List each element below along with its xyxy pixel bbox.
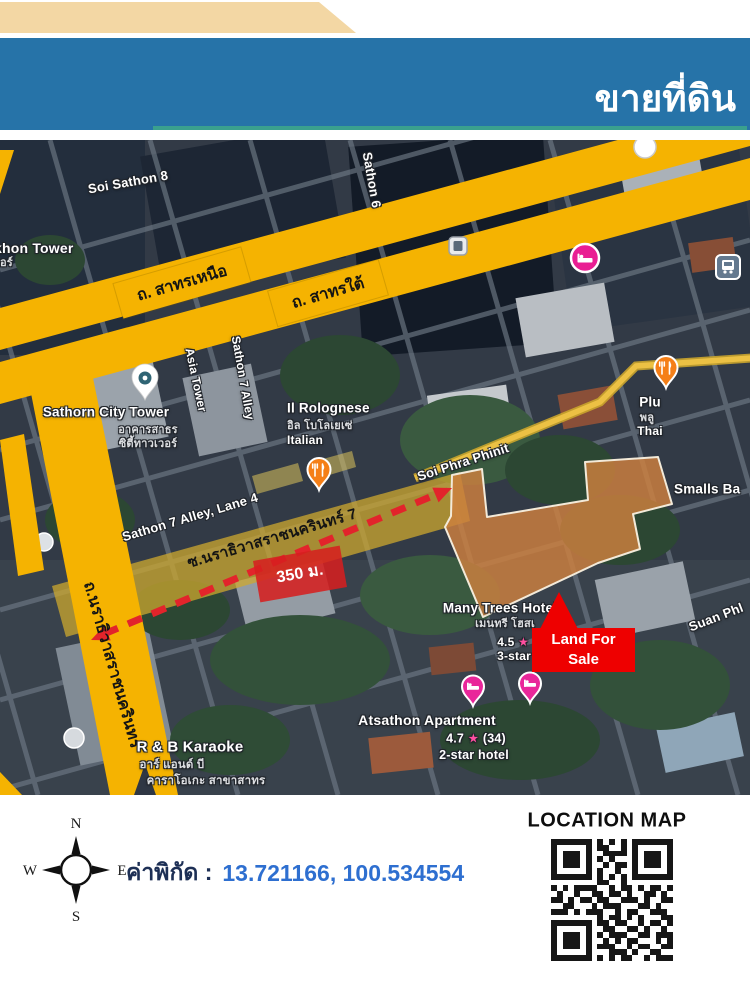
- compass-w: W: [23, 863, 38, 879]
- atsathon-rating: 4.7 ★ (34): [446, 731, 506, 746]
- banner-divider: [153, 126, 747, 130]
- place-label-plu-type: Thai: [637, 424, 662, 438]
- qr-code: [551, 839, 673, 961]
- many-trees-class: 3-star: [497, 649, 531, 663]
- satellite-map: Soi Sathon 8 khon Tower อร์ Sathon 6 ถ. …: [0, 140, 750, 795]
- place-label-many-trees-thai: เมนทรี โฮสเ: [475, 614, 535, 632]
- land-for-sale-callout: Land For Sale: [532, 628, 635, 672]
- hotel-pin-icon: [571, 244, 599, 272]
- star-icon: ★: [468, 732, 479, 746]
- coordinates-row: ค่าพิกัด : 13.721166, 100.534554: [126, 856, 464, 890]
- star-icon: ★: [518, 635, 529, 649]
- station-icon: [634, 140, 656, 158]
- rating-value: 4.5: [497, 635, 514, 649]
- land-for-sale-line1: Land For: [532, 630, 635, 650]
- many-trees-rating: 4.5 ★: [497, 635, 529, 649]
- place-label-il-rolognese-type: Italian: [287, 433, 323, 447]
- tan-decorative-shape: [0, 0, 750, 40]
- place-label-il-rolognese: Il Rolognese: [287, 401, 370, 416]
- place-label-karaoke-thai2: คาราโอเกะ สาขาสาทร: [147, 772, 266, 790]
- rating-value: 4.7: [446, 732, 464, 746]
- compass-rose: N S W E: [18, 812, 134, 928]
- place-label-il-rolognese-thai: อิล โบโลเยเซ่: [287, 416, 353, 434]
- atsathon-class: 2-star hotel: [439, 748, 509, 762]
- location-map-title: LOCATION MAP: [528, 810, 687, 833]
- review-count: (34): [483, 732, 506, 746]
- callout-pointer: [540, 592, 578, 629]
- land-for-sale-line2: Sale: [532, 650, 635, 670]
- bus-stop-icon: [716, 255, 740, 279]
- place-label-sakhon-tower-thai: อร์: [0, 253, 13, 271]
- poi-circle-icon: [64, 728, 84, 748]
- flyer-title: ขายที่ดิน: [595, 80, 736, 117]
- place-label-karaoke: R & B Karaoke: [137, 739, 244, 756]
- title-banner: ขายที่ดิน ซอยนราธิวาสราชนครินทร์ 7 เขตสา…: [0, 38, 750, 130]
- place-label-smalls-bar: Smalls Ba: [674, 482, 740, 497]
- place-label-sathorn-city-tower: Sathorn City Tower: [43, 405, 169, 420]
- compass-s: S: [72, 909, 80, 925]
- compass-n: N: [71, 816, 82, 832]
- place-label-sathorn-city-thai2: ซิตี้ทาวเวอร์: [119, 434, 177, 452]
- coordinates-label: ค่าพิกัด :: [126, 855, 212, 891]
- transit-icon: [449, 237, 467, 255]
- flyer-page: ขายที่ดิน ซอยนราธิวาสราชนครินทร์ 7 เขตสา…: [0, 0, 750, 1000]
- place-label-atsathon: Atsathon Apartment: [358, 712, 496, 728]
- coordinates-value: 13.721166, 100.534554: [222, 860, 464, 887]
- qr-module: [667, 955, 673, 961]
